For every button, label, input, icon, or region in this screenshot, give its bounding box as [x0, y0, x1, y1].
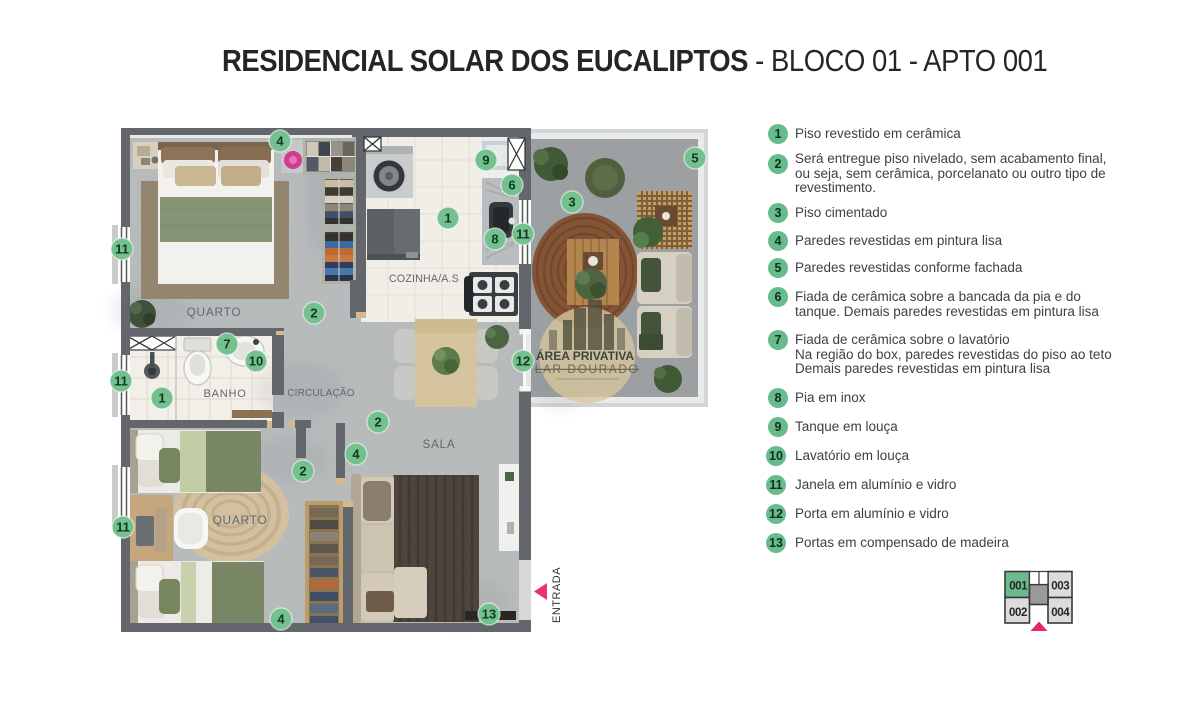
svg-text:2: 2 [310, 306, 317, 321]
svg-text:2: 2 [374, 415, 381, 430]
svg-text:QUARTO: QUARTO [213, 513, 268, 527]
svg-text:1: 1 [444, 211, 451, 226]
svg-text:2: 2 [299, 464, 306, 479]
svg-text:ENTRADA: ENTRADA [551, 567, 563, 623]
svg-text:ÁREA PRIVATIVA: ÁREA PRIVATIVA [536, 348, 635, 363]
svg-text:4: 4 [276, 134, 284, 149]
svg-text:1: 1 [158, 391, 165, 406]
svg-text:10: 10 [249, 354, 263, 369]
svg-text:3: 3 [568, 195, 575, 210]
svg-text:BANHO: BANHO [203, 388, 246, 400]
svg-text:11: 11 [516, 227, 530, 242]
svg-text:13: 13 [482, 607, 496, 622]
svg-text:SALA: SALA [423, 438, 456, 451]
svg-text:5: 5 [691, 151, 698, 166]
svg-text:QUARTO: QUARTO [187, 305, 242, 319]
svg-text:6: 6 [508, 178, 515, 193]
svg-text:12: 12 [516, 354, 530, 369]
svg-text:8: 8 [491, 232, 498, 247]
svg-text:11: 11 [114, 374, 128, 389]
svg-text:COZINHA/A.S: COZINHA/A.S [389, 273, 459, 285]
svg-text:CIRCULAÇÃO: CIRCULAÇÃO [287, 386, 355, 399]
svg-text:002: 002 [1009, 607, 1027, 619]
svg-text:4: 4 [277, 612, 285, 627]
svg-text:004: 004 [1051, 607, 1070, 619]
svg-text:9: 9 [482, 153, 489, 168]
svg-text:11: 11 [115, 242, 129, 257]
svg-text:003: 003 [1051, 581, 1069, 593]
svg-text:LAR DOURADO: LAR DOURADO [535, 362, 640, 376]
svg-text:001: 001 [1009, 581, 1028, 593]
svg-text:11: 11 [116, 520, 130, 535]
svg-text:7: 7 [223, 337, 230, 352]
svg-text:4: 4 [352, 447, 360, 462]
